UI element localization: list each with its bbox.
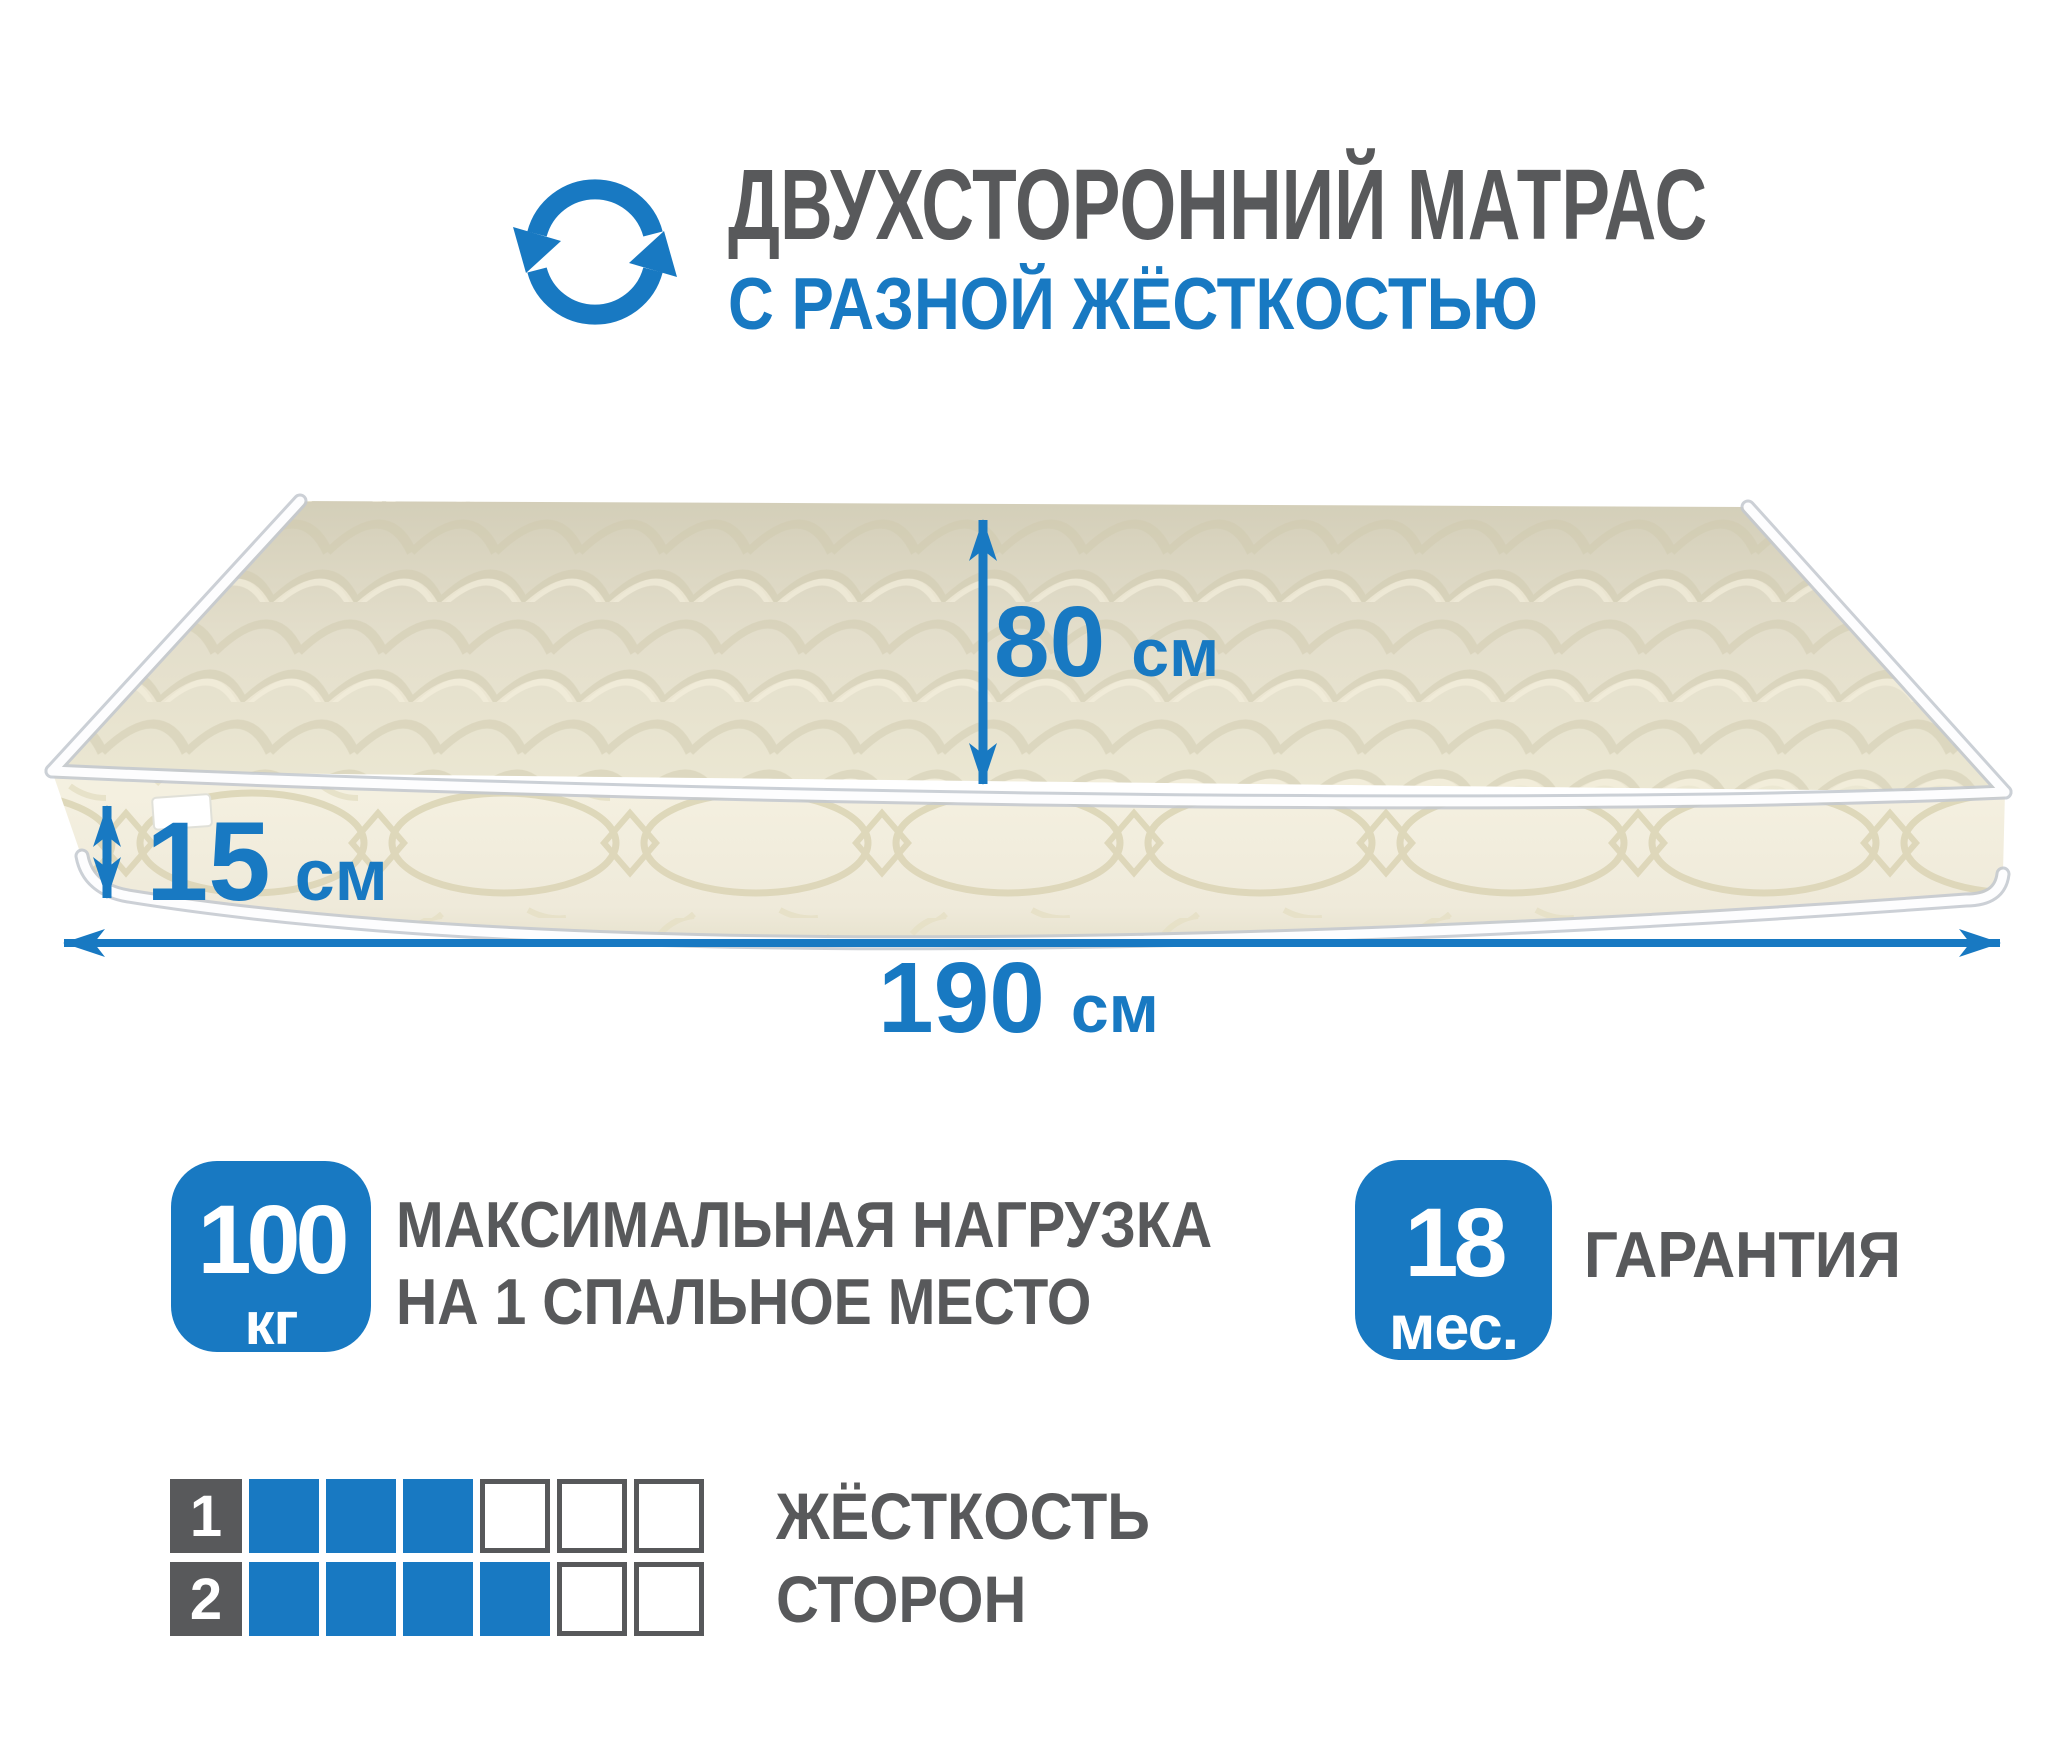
firmness-cell-filled — [249, 1562, 319, 1636]
firmness-cell-empty — [634, 1479, 704, 1553]
dimension-label-thickness: 15 см — [146, 806, 388, 918]
firmness-cell-filled — [326, 1562, 396, 1636]
max-load-value: 100 — [171, 1161, 371, 1288]
firmness-cell-empty — [480, 1479, 550, 1553]
firmness-row-1-number: 1 — [170, 1479, 242, 1553]
firmness-cell-filled — [403, 1479, 473, 1553]
dimension-label-length: 190 см — [878, 948, 1159, 1048]
max-load-badge: 100 кг — [171, 1161, 371, 1352]
max-load-unit: кг — [171, 1294, 371, 1354]
firmness-row-2-number: 2 — [170, 1562, 242, 1636]
max-load-label-line1: МАКСИМАЛЬНАЯ НАГРУЗКА — [396, 1186, 1212, 1263]
warranty-unit: мес. — [1355, 1297, 1552, 1360]
firmness-cell-empty — [557, 1562, 627, 1636]
warranty-value: 18 — [1355, 1160, 1552, 1291]
thickness-unit: см — [295, 840, 388, 912]
warranty-badge: 18 мес. — [1355, 1160, 1552, 1360]
length-value: 190 — [878, 948, 1045, 1048]
max-load-label: МАКСИМАЛЬНАЯ НАГРУЗКА НА 1 СПАЛЬНОЕ МЕСТ… — [396, 1186, 1212, 1340]
firmness-cell-filled — [403, 1562, 473, 1636]
width-value: 80 — [994, 592, 1105, 692]
firmness-caption-line2: СТОРОН — [776, 1561, 1026, 1637]
firmness-caption-line1: ЖЁСТКОСТЬ — [776, 1478, 1150, 1554]
firmness-cell-filled — [326, 1479, 396, 1553]
firmness-row-1-cells — [242, 1479, 704, 1553]
firmness-cell-filled — [249, 1479, 319, 1553]
length-unit: см — [1071, 975, 1159, 1043]
dimension-label-width: 80 см — [994, 592, 1219, 692]
warranty-label: ГАРАНТИЯ — [1584, 1222, 1901, 1287]
thickness-value: 15 — [146, 806, 271, 918]
firmness-row-2-cells — [242, 1562, 704, 1636]
firmness-row-1: 1 ЖЁСТКОСТЬ — [170, 1479, 1192, 1553]
max-load-label-line2: НА 1 СПАЛЬНОЕ МЕСТО — [396, 1263, 1212, 1340]
mattress-infographic: ДВУХСТОРОННИЙ МАТРАС С РАЗНОЙ ЖЁСТКОСТЬЮ — [0, 0, 2048, 1757]
firmness-cell-empty — [557, 1479, 627, 1553]
firmness-row-2: 2 СТОРОН — [170, 1562, 1192, 1636]
firmness-scale: 1 ЖЁСТКОСТЬ 2 СТОРОН — [170, 1479, 1192, 1645]
width-unit: см — [1131, 619, 1219, 687]
firmness-cell-filled — [480, 1562, 550, 1636]
firmness-cell-empty — [634, 1562, 704, 1636]
